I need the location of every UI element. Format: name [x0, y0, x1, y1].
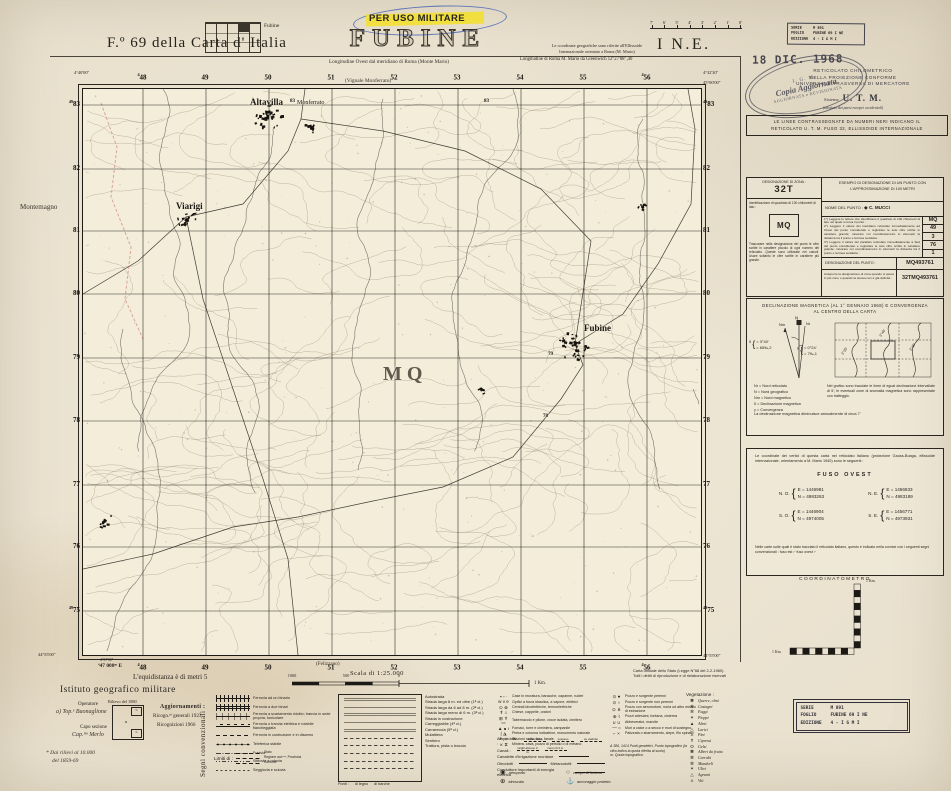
well-symbol: ⊙ ○	[610, 701, 623, 706]
coord-note-2: Internazionale orientato a Roma (M. Mari…	[522, 49, 672, 54]
vegetation-symbol: △	[688, 773, 696, 777]
survey-diagram: a b b	[112, 705, 144, 740]
survey-footnote-2: del 1859-69	[52, 758, 78, 764]
sheet-index-highlight-cell	[239, 24, 249, 32]
map-title: FUBINE	[337, 25, 499, 53]
minute-tick-label: 7'	[650, 20, 653, 28]
minute-tick-label: 2'	[714, 20, 717, 28]
railway-symbol	[216, 704, 250, 711]
aqueduct-sample: sospeso	[552, 741, 574, 742]
building-symbol: ⊞ ✝ ▭	[497, 717, 510, 726]
svg-text:3°45': 3°45'	[909, 342, 917, 351]
coord-note-1: Le coordinate geografiche sono riferite …	[522, 43, 672, 48]
map-place-label: 83	[290, 99, 295, 104]
map-place-label: MQ	[383, 363, 427, 386]
map-place-label: 79	[548, 352, 553, 357]
corner-bottom-right-lat: 44°55'00″	[703, 653, 721, 658]
corner-bottom-left-lat: 44°55'00″	[38, 652, 56, 657]
aqueduct-sample: su viadotto	[580, 741, 602, 742]
map-place-label: 78	[543, 414, 548, 419]
grid-square-id: MQ	[769, 214, 799, 237]
vegetation-symbol: ▲	[688, 722, 696, 726]
well-symbol: ⊙ ⋔	[610, 708, 623, 713]
legend-wells: ⊙ ●Pozzo e sorgente perenni⊙ ○Pozzo e so…	[610, 695, 696, 737]
pipeline-line	[519, 763, 547, 764]
well-symbol: ⊕ ⌇	[610, 715, 623, 720]
adjoining-sheet-top: (Vignale Monferrato)	[345, 78, 391, 84]
scale-end-label: 1 Km.	[534, 681, 546, 686]
well-symbol: ⊙ ●	[610, 695, 623, 700]
limit-symbol	[236, 761, 262, 765]
railway-symbol	[216, 723, 250, 730]
military-use-label: PER USO MILITARE	[369, 13, 465, 24]
map-place-label: Altavilla	[250, 97, 283, 107]
example-point-name: ◆ C. MUCCI	[864, 205, 890, 210]
airport-symbol: ⊕	[500, 779, 505, 786]
minute-tick-label: 3'	[701, 20, 704, 28]
legend-title: Segni convenzionali	[199, 697, 207, 777]
map-place-label: 83	[484, 99, 489, 104]
legend-bridges: Ponti : di legno di barche	[338, 782, 396, 786]
adjoining-sheet-left: Montemagno	[20, 203, 57, 211]
operator-name: a) Top.ᵉ Buonaglione	[56, 709, 107, 715]
canal-line	[559, 756, 589, 757]
legend-vegetation: ✽Querce, olmi✻Castagni✼Faggi✶Pioppi▲Abet…	[688, 699, 742, 785]
point-designation-panel: DESIGNAZIONE DI ZONA :32T Identificazion…	[746, 177, 944, 297]
convergence-value: γ{ = 0°24'= 7‰,1	[797, 345, 817, 357]
airport-symbol: ◉	[500, 770, 506, 777]
pipeline-line	[577, 763, 605, 764]
railway-symbol	[216, 713, 250, 720]
svg-text:Nm: Nm	[779, 322, 786, 327]
coordinatometro-km-vertical: 1 Km.	[866, 579, 876, 583]
zone-value: 32T	[747, 184, 821, 195]
official-map-note: Carta ufficiale dello Stato (Legge N°68 …	[633, 668, 745, 678]
legend-road-samples	[338, 694, 422, 782]
vegetation-symbol: ✽	[688, 699, 696, 703]
svg-text:3°40': 3°40'	[879, 328, 887, 337]
publisher: Istituto geografico militare	[60, 685, 176, 695]
svg-text:Nr: Nr	[806, 321, 811, 326]
svg-text:N: N	[795, 316, 798, 321]
corner-bottom-left-lon: 4°37'30″	[100, 658, 113, 662]
section-chief-label: Capo sezione	[80, 725, 107, 730]
coordinatometro-km-horizontal: 1 Km.	[772, 650, 782, 654]
canal-sample: meno di 3 m.	[545, 750, 567, 751]
coordinatometro-ruler	[750, 582, 872, 660]
map-place-label: Fubine	[584, 323, 611, 333]
svg-text:3°35': 3°35'	[841, 346, 849, 355]
vegetation-symbol: ✻	[688, 756, 696, 760]
longitude-note: Longitudine Ovest dal meridiano di Roma …	[329, 59, 449, 65]
isogonic-note: Nel grafico sono tracciate le linee di e…	[827, 384, 935, 399]
well-symbol: ⌐ ×	[610, 732, 623, 737]
scale-label: Scala di 1:25.000	[350, 670, 404, 677]
declination-legend: Nr = Nord reticolatoN = Nord geograficoN…	[754, 384, 801, 413]
map-sheet: Fubine F.º 69 della Carta d' Italia PER …	[0, 0, 951, 791]
declination-value: δ{ = 3°40'= 65‰,2	[749, 339, 771, 351]
airport-symbol: ⚓	[566, 779, 574, 786]
railway-symbol	[216, 732, 250, 739]
vegetation-symbol: ⋏	[688, 733, 696, 737]
canal-sample: larghi almeno 3 m.	[517, 750, 539, 751]
designation-result: MQ493761	[896, 258, 943, 269]
series-title: F.º 69 della Carta d' Italia	[107, 35, 287, 52]
map-place-label: Viarigi	[176, 201, 203, 211]
corner-top-right-lat: 45°00'00″	[703, 80, 721, 85]
series-stamp-box: SERIEM 891 FOGLIOFUBINE 69 I NE EDIZIONE…	[787, 23, 865, 46]
legend-limits: Limiti di : StatoRegione aut.ᵐᵃ, Provinc…	[214, 751, 301, 766]
survey-year-label: Rilievo del 1880	[108, 699, 137, 704]
adjoining-sheet-bottom: (Felizzano)	[316, 661, 340, 667]
utm-grid-note: LE LINEE CONTRASSEGNATE DA NUMERI NERI I…	[746, 115, 948, 136]
legend-roads: AutostradaStrada larga 8 m. ed oltre (1ª…	[425, 695, 495, 750]
vegetation-symbol: ✶	[688, 716, 696, 720]
operator-label: Operatore	[78, 702, 98, 707]
designation-steps: 1°) Leggere le lettere che identificano …	[822, 217, 922, 258]
map-place-label: Monferrato	[297, 100, 324, 106]
panel-separator-rule	[740, 56, 741, 662]
declination-panel: DECLINAZIONE MAGNETICA (AL 1° GENNAIO 19…	[746, 298, 944, 436]
scale-bar	[292, 679, 532, 689]
corner-top-left-lon: 4°40'00″	[74, 70, 89, 75]
designation-values: MQ 49 3 76 1	[922, 217, 943, 258]
legend-airports: ◉aeroporto○campo di fortuna⊕idroscalo⚓an…	[500, 770, 640, 787]
survey-footnote-1: * Dai rilievi al 10.000	[46, 750, 95, 756]
minute-ruler: 7'6'5'4'3'2'1'0'	[650, 20, 742, 29]
airport-symbol: ○	[566, 770, 570, 777]
vegetation-symbol: ✝	[688, 739, 696, 743]
equidistance-note: L'equidistanza è di metri 5	[133, 673, 207, 681]
series-box-bottom: SERIEM 891 FOGLIOFUBINE 69 I NE EDIZIONE…	[793, 699, 910, 733]
railway-symbol	[216, 766, 250, 773]
designation-full-result: 32TMQ493761	[896, 270, 943, 296]
limit-symbol	[236, 756, 262, 760]
minute-tick-label: 6'	[663, 20, 666, 28]
fuso-title: FUSO OVEST	[747, 472, 943, 478]
minute-tick-label: 4'	[688, 20, 691, 28]
vegetation-label: Vegetazione :	[686, 692, 714, 697]
sheet-index-label: Fubine	[264, 23, 279, 29]
gauss-boaga-panel: Le coordinate dei vertici di questa cart…	[746, 448, 944, 576]
easting-origin-label: ⁴47 000ᵐ E	[98, 663, 122, 669]
railway-symbol	[216, 695, 250, 702]
update-2: Ricognizioni 1966	[157, 722, 195, 728]
quadrant-label: I N.E.	[657, 36, 711, 54]
minute-tick-label: 1'	[726, 20, 729, 28]
aqueduct-sample: sotterraneo	[524, 741, 546, 742]
annual-change-note: La declinazione magnetica diminuisce ann…	[754, 411, 861, 416]
vegetation-symbol: ⋏	[688, 779, 696, 783]
limit-symbol	[236, 751, 262, 755]
railway-symbol	[216, 741, 250, 748]
minute-tick-label: 5'	[675, 20, 678, 28]
legend-notes: Δ 386, 1414 Punti geodetici, Punto topog…	[610, 744, 694, 758]
minute-tick-label: 0'	[739, 20, 742, 28]
coord-note-3: Longitudine di Roma M. Mario da Greenwic…	[520, 57, 680, 62]
update-1: Ricogn.ⁿⁱ generali 1923	[153, 713, 202, 719]
corner-coordinates: N. O.{ E = 1446981N = 4983263 N. E.{ E =…	[757, 482, 935, 526]
section-chief-name: Cap.ᵐᵒ Merlo	[72, 732, 104, 738]
isogonic-diagram: 3°35' 3°40' 3°45'	[833, 321, 933, 379]
corner-top-right-lon: 4°32'30″	[703, 70, 718, 75]
